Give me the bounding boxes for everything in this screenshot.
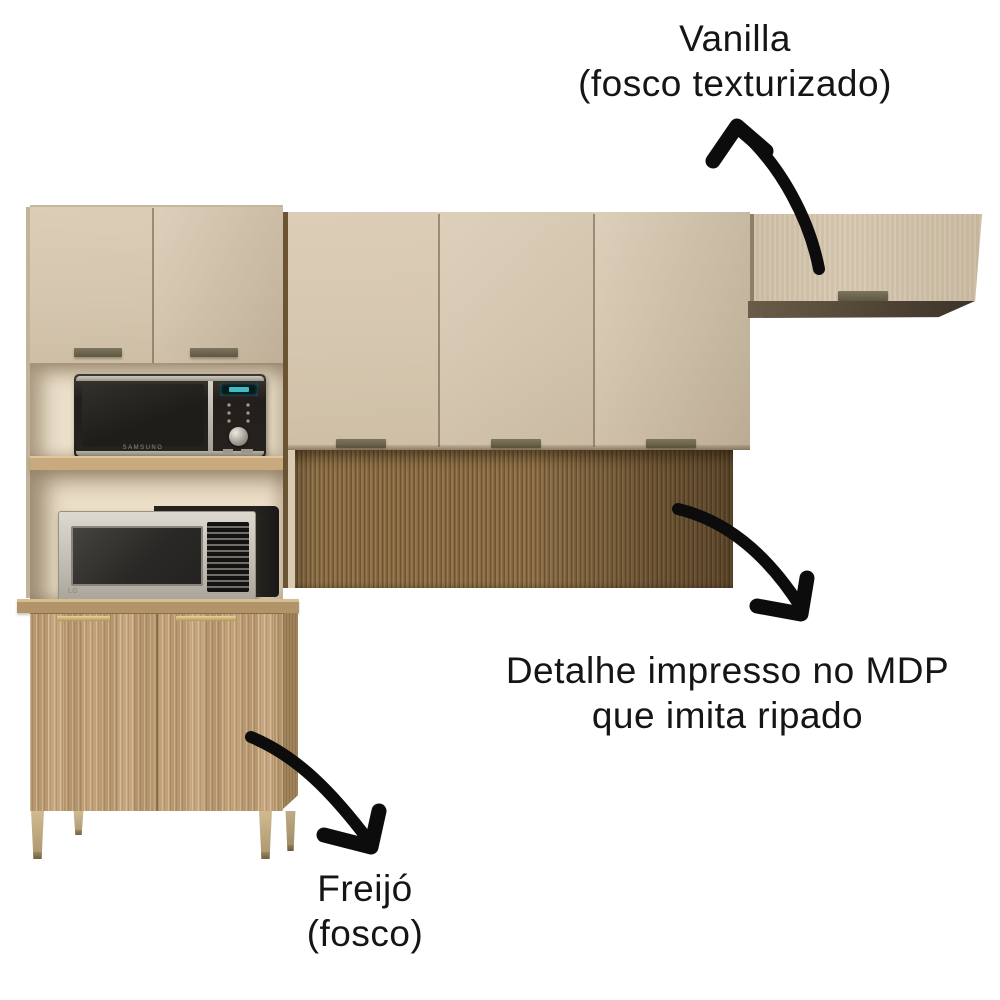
microwave-brand-label: SAMSUNG: [108, 445, 178, 451]
wall-cabinet: [285, 212, 750, 450]
corner-cabinet-underside: [748, 301, 975, 318]
arrowhead-icon: [757, 578, 807, 614]
annotation-label-vanilla: Vanilla (fosco texturizado): [485, 16, 985, 106]
wall-door-2: [440, 212, 593, 450]
ripado-slatted-panel: [292, 450, 733, 588]
corner-cabinet-seam: [750, 214, 754, 301]
lg-microwave: LG: [58, 506, 279, 599]
upper-door-left: [30, 207, 152, 365]
base-cabinet-side: [283, 613, 298, 809]
microwave-door-window: [71, 526, 203, 586]
cabinet-leg: [29, 811, 46, 859]
microwave-door-divider: [208, 381, 213, 451]
microwave-knob: [229, 427, 248, 446]
base-door-handle: [57, 616, 110, 621]
annotation-label-mdp-detail: Detalhe impresso no MDP que imita ripado: [470, 648, 985, 738]
base-cabinet: [30, 613, 283, 811]
samsung-microwave: SAMSUNG: [74, 374, 266, 458]
microwave-display-digits: [229, 387, 249, 392]
microwave-display: [220, 383, 258, 396]
open-niche-bottom: [30, 470, 283, 599]
annotation-line: (fosco texturizado): [485, 61, 985, 106]
cabinet-leg-back: [284, 811, 297, 851]
leg-foot-cap: [284, 845, 297, 851]
shelf-divider: [30, 456, 283, 472]
leg-foot-cap: [72, 830, 85, 835]
annotation-line: Vanilla: [485, 16, 985, 61]
cabinet-leg-back: [72, 811, 85, 835]
arrowhead-icon: [324, 811, 379, 847]
corner-door-handle: [838, 291, 888, 301]
microwave-front-frame: LG: [58, 511, 256, 601]
corner-cabinet-texture: [754, 214, 982, 301]
ripado-shading: [292, 450, 733, 588]
wall-door-1: [285, 212, 438, 450]
leg-foot-cap: [29, 852, 46, 859]
annotation-line: (fosco): [265, 911, 465, 956]
product-annotation-image: SAMSUNG LG: [0, 0, 1000, 1000]
countertop: [17, 599, 299, 613]
annotation-label-freijo: Freijó (fosco): [265, 866, 465, 956]
wall-door-3: [595, 212, 750, 450]
annotation-line: que imita ripado: [470, 693, 985, 738]
base-door-handle: [176, 616, 236, 621]
upper-door-right: [154, 207, 283, 365]
annotation-line: Detalhe impresso no MDP: [470, 648, 985, 693]
microwave-button: [241, 449, 253, 453]
leg-foot-cap: [257, 852, 274, 859]
end-panel-strip: [288, 450, 295, 588]
cabinet-leg: [257, 811, 274, 859]
upper-door-handle: [190, 348, 238, 357]
microwave-top-body: [154, 506, 254, 514]
microwave-brand-label: LG: [68, 588, 78, 595]
corner-cabinet-door: [754, 214, 982, 301]
microwave-food-preset-keys: [220, 401, 258, 425]
curved-arrow-icon-freijo: [251, 737, 369, 841]
tall-cabinet-side-edge: [26, 207, 31, 598]
upper-door-handle: [74, 348, 122, 357]
upper-cabinet: [30, 205, 283, 367]
microwave-keypad: [207, 522, 249, 592]
open-niche-top: [30, 365, 283, 456]
door-seam: [152, 208, 154, 363]
upper-cabinet-underside: [30, 363, 283, 367]
microwave-button: [223, 449, 233, 453]
cabinet-side-seam: [281, 212, 288, 588]
annotation-line: Freijó: [265, 866, 465, 911]
microwave-side-body: [245, 506, 279, 597]
microwave-bottom-trim: [76, 451, 264, 456]
door-seam: [156, 614, 158, 811]
microwave-door-window: [82, 384, 204, 446]
arrowhead-icon: [713, 126, 766, 161]
microwave-top-trim: [76, 376, 264, 381]
